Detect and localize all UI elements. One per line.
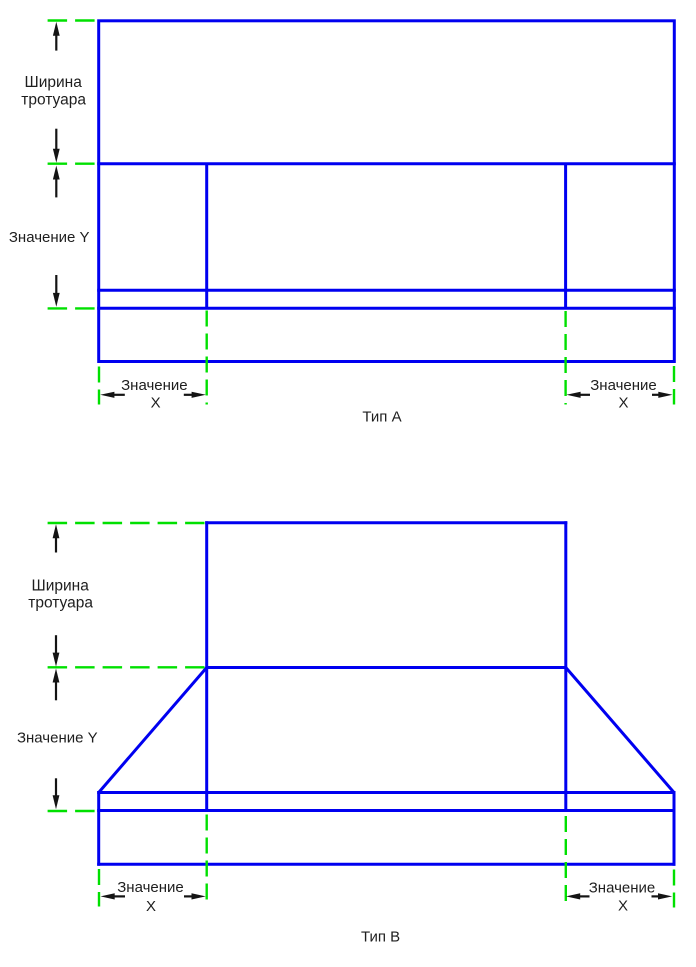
svg-text:Тип A: Тип A — [362, 409, 401, 426]
svg-text:Значение Y: Значение Y — [17, 730, 98, 747]
svg-text:Значение: Значение — [590, 377, 657, 394]
svg-text:X: X — [618, 395, 628, 412]
svg-text:Ширина: Ширина — [25, 74, 83, 91]
svg-text:Тип B: Тип B — [361, 928, 400, 945]
svg-text:Значение: Значение — [117, 879, 184, 896]
svg-text:X: X — [146, 898, 156, 915]
svg-text:X: X — [618, 898, 628, 915]
svg-text:Значение Y: Значение Y — [9, 229, 90, 246]
svg-text:X: X — [151, 395, 161, 412]
svg-text:тротуара: тротуара — [28, 595, 93, 612]
svg-text:Значение: Значение — [121, 377, 188, 394]
svg-text:тротуара: тротуара — [21, 92, 86, 109]
svg-text:Ширина: Ширина — [32, 577, 90, 594]
svg-text:Значение: Значение — [589, 879, 656, 896]
